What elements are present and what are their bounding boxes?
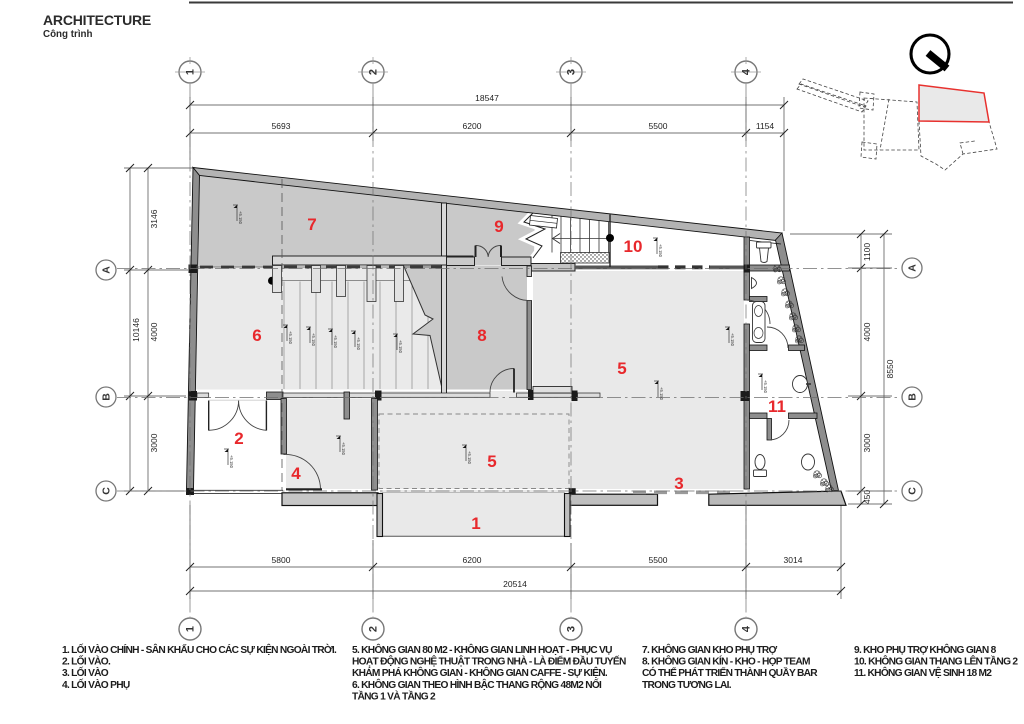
svg-text:7: 7 — [307, 215, 316, 234]
svg-text:8550: 8550 — [885, 359, 895, 378]
svg-text:6: 6 — [252, 326, 261, 345]
svg-text:18547: 18547 — [475, 93, 499, 103]
svg-text:9. KHO PHỤ TRỢ KHÔNG GIAN 8: 9. KHO PHỤ TRỢ KHÔNG GIAN 8 — [854, 643, 997, 656]
svg-text:2: 2 — [234, 429, 243, 448]
svg-text:3: 3 — [566, 69, 578, 75]
svg-text:C: C — [907, 487, 919, 495]
svg-text:Công trình: Công trình — [43, 29, 93, 40]
svg-text:10146: 10146 — [131, 318, 141, 342]
svg-text:TRONG TƯƠNG LAI.: TRONG TƯƠNG LAI. — [642, 680, 732, 691]
svg-text:5500: 5500 — [649, 121, 668, 131]
svg-text:5. KHÔNG GIAN 80 M2 - KHÔNG GI: 5. KHÔNG GIAN 80 M2 - KHÔNG GIAN LINH HO… — [352, 643, 612, 656]
svg-text:10. KHÔNG GIAN THANG LÊN TẦNG: 10. KHÔNG GIAN THANG LÊN TẦNG 2 — [854, 655, 1018, 668]
svg-text:5693: 5693 — [272, 121, 291, 131]
svg-text:A: A — [101, 266, 113, 274]
svg-text:6. KHÔNG GIAN THEO HÌNH BẬC TH: 6. KHÔNG GIAN THEO HÌNH BẬC THANG RỘNG 4… — [352, 677, 602, 691]
svg-text:3014: 3014 — [784, 555, 803, 565]
svg-text:1100: 1100 — [862, 243, 872, 262]
svg-text:3000: 3000 — [862, 433, 872, 452]
svg-text:7. KHÔNG GIAN KHO PHỤ TRỢ: 7. KHÔNG GIAN KHO PHỤ TRỢ — [642, 643, 777, 656]
svg-text:3146: 3146 — [149, 209, 159, 228]
svg-text:8. KHÔNG GIAN KÍN - KHO - HỌP: 8. KHÔNG GIAN KÍN - KHO - HỌP TEAM — [642, 655, 810, 668]
svg-text:8: 8 — [477, 326, 486, 345]
svg-text:TẦNG 1 VÀ TẦNG 2: TẦNG 1 VÀ TẦNG 2 — [352, 689, 436, 702]
svg-text:5: 5 — [617, 359, 626, 378]
svg-text:5800: 5800 — [272, 555, 291, 565]
svg-text:B: B — [907, 393, 919, 401]
svg-text:1: 1 — [185, 626, 197, 632]
svg-text:1: 1 — [471, 514, 480, 533]
svg-text:CÓ THỂ PHÁT TRIỂN THÀNH QUẦY B: CÓ THỂ PHÁT TRIỂN THÀNH QUẦY BAR — [642, 666, 818, 679]
svg-text:3. LỐI VÀO: 3. LỐI VÀO — [62, 665, 109, 679]
svg-text:4000: 4000 — [862, 322, 872, 341]
svg-text:1: 1 — [185, 69, 197, 75]
svg-text:4: 4 — [741, 68, 753, 75]
svg-text:11: 11 — [768, 397, 786, 416]
svg-text:2: 2 — [368, 626, 380, 632]
svg-text:4: 4 — [291, 464, 301, 483]
svg-text:4000: 4000 — [149, 322, 159, 341]
svg-text:3000: 3000 — [149, 433, 159, 452]
svg-text:ARCHITECTURE: ARCHITECTURE — [43, 12, 151, 28]
svg-text:2: 2 — [368, 69, 380, 75]
svg-text:4: 4 — [741, 625, 753, 632]
svg-text:9: 9 — [494, 217, 503, 236]
svg-text:B: B — [101, 393, 113, 401]
svg-text:HOẠT ĐỘNG NGHỆ THUẬT TRONG NHÀ: HOẠT ĐỘNG NGHỆ THUẬT TRONG NHÀ - LÀ ĐIỂM… — [352, 655, 626, 668]
svg-text:11. KHÔNG GIAN VỆ SINH 18 M2: 11. KHÔNG GIAN VỆ SINH 18 M2 — [854, 666, 992, 679]
svg-text:5: 5 — [487, 452, 496, 471]
svg-text:3: 3 — [674, 474, 683, 493]
svg-text:20514: 20514 — [503, 579, 527, 589]
svg-text:6200: 6200 — [463, 121, 482, 131]
svg-text:C: C — [101, 487, 113, 495]
svg-text:A: A — [907, 264, 919, 272]
svg-text:450: 450 — [862, 490, 872, 504]
svg-text:10: 10 — [624, 237, 643, 256]
svg-text:2. LỐI VÀO.: 2. LỐI VÀO. — [62, 654, 111, 668]
svg-text:5500: 5500 — [649, 555, 668, 565]
svg-text:KHÁM PHÁ KHÔNG GIAN - KHÔNG GI: KHÁM PHÁ KHÔNG GIAN - KHÔNG GIAN CAFFE -… — [352, 666, 608, 679]
svg-text:1. LỐI VÀO CHÍNH - SÂN KHẤU CH: 1. LỐI VÀO CHÍNH - SÂN KHẤU CHO CÁC SỰ K… — [62, 642, 337, 656]
svg-text:1154: 1154 — [756, 121, 775, 131]
svg-text:6200: 6200 — [463, 555, 482, 565]
svg-text:3: 3 — [566, 626, 578, 632]
svg-text:4. LỐI VÀO PHỤ: 4. LỐI VÀO PHỤ — [62, 677, 130, 691]
